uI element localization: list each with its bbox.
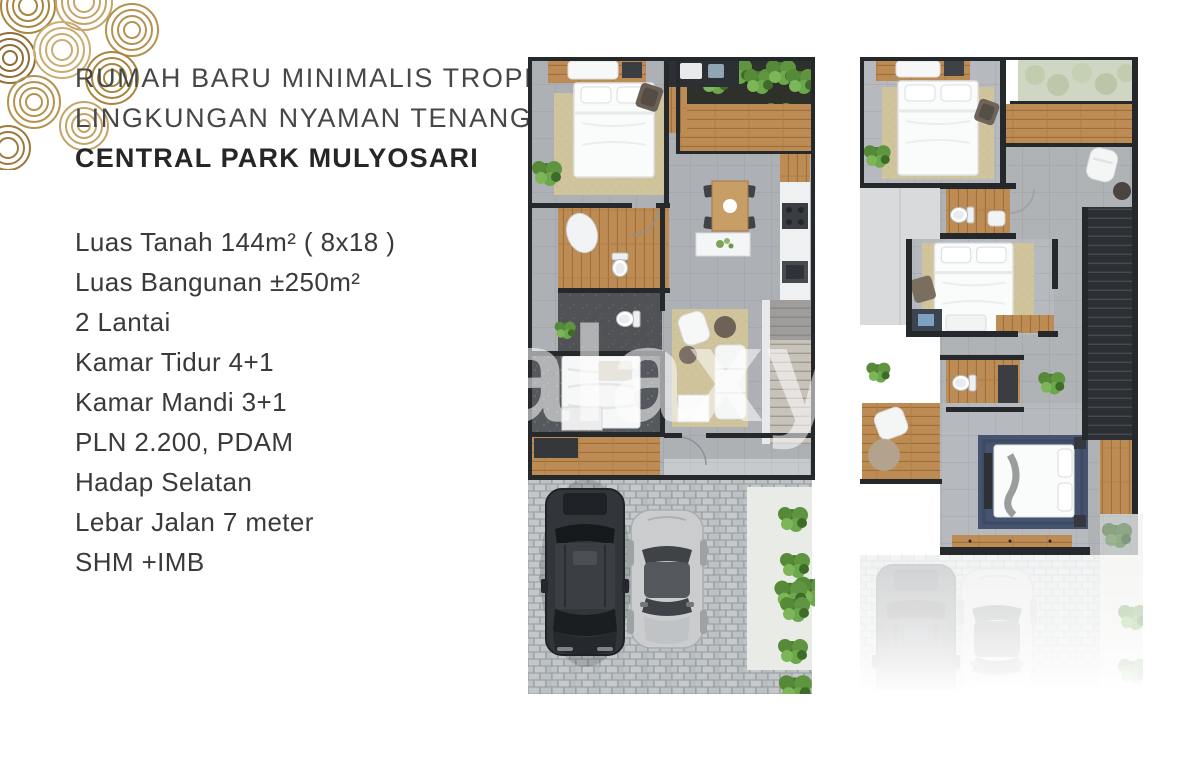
- floorplan-second-floor: [860, 57, 1143, 690]
- spec-road-width: Lebar Jalan 7 meter: [75, 502, 395, 542]
- bathroom-1: [558, 208, 669, 289]
- spec-utilities: PLN 2.200, PDAM: [75, 422, 395, 462]
- kitchen-island: [696, 233, 750, 256]
- bedroom-2: [909, 239, 1054, 335]
- carport: [528, 479, 815, 694]
- spec-floors: 2 Lantai: [75, 302, 395, 342]
- bathroom-2: [946, 360, 1020, 407]
- porch: [664, 459, 810, 476]
- headline-line-2: LINGKUNGAN NYAMAN TENANG: [75, 98, 553, 138]
- staircase: [762, 300, 811, 444]
- headline-line-1: RUMAH BARU MINIMALIS TROPIS: [75, 58, 553, 98]
- car-silver: [627, 510, 707, 648]
- headline-line-3-project-name: CENTRAL PARK MULYOSARI: [75, 138, 553, 178]
- suv-black: [541, 489, 629, 655]
- spec-facing: Hadap Selatan: [75, 462, 395, 502]
- headline-block: RUMAH BARU MINIMALIS TROPIS LINGKUNGAN N…: [75, 58, 553, 178]
- floorplan-first-floor: [528, 57, 815, 694]
- balcony: [862, 363, 940, 483]
- greenery-strip: [747, 487, 815, 694]
- living-room: [672, 309, 748, 427]
- spec-bedrooms: Kamar Tidur 4+1: [75, 342, 395, 382]
- rooftop-green: [1018, 60, 1138, 104]
- bedroom-2: [530, 356, 660, 432]
- spec-land-area: Luas Tanah 144m² ( 8x18 ): [75, 222, 395, 262]
- spec-list: Luas Tanah 144m² ( 8x18 ) Luas Bangunan …: [75, 222, 395, 582]
- bedroom-1: [862, 59, 1001, 185]
- wood-deck: [1006, 104, 1138, 146]
- spec-building-area: Luas Bangunan ±250m²: [75, 262, 395, 302]
- wood-deck: [676, 104, 815, 154]
- spec-bathrooms: Kamar Mandi 3+1: [75, 382, 395, 422]
- toilet-room: [558, 293, 662, 351]
- spec-certificate: SHM +IMB: [75, 542, 395, 582]
